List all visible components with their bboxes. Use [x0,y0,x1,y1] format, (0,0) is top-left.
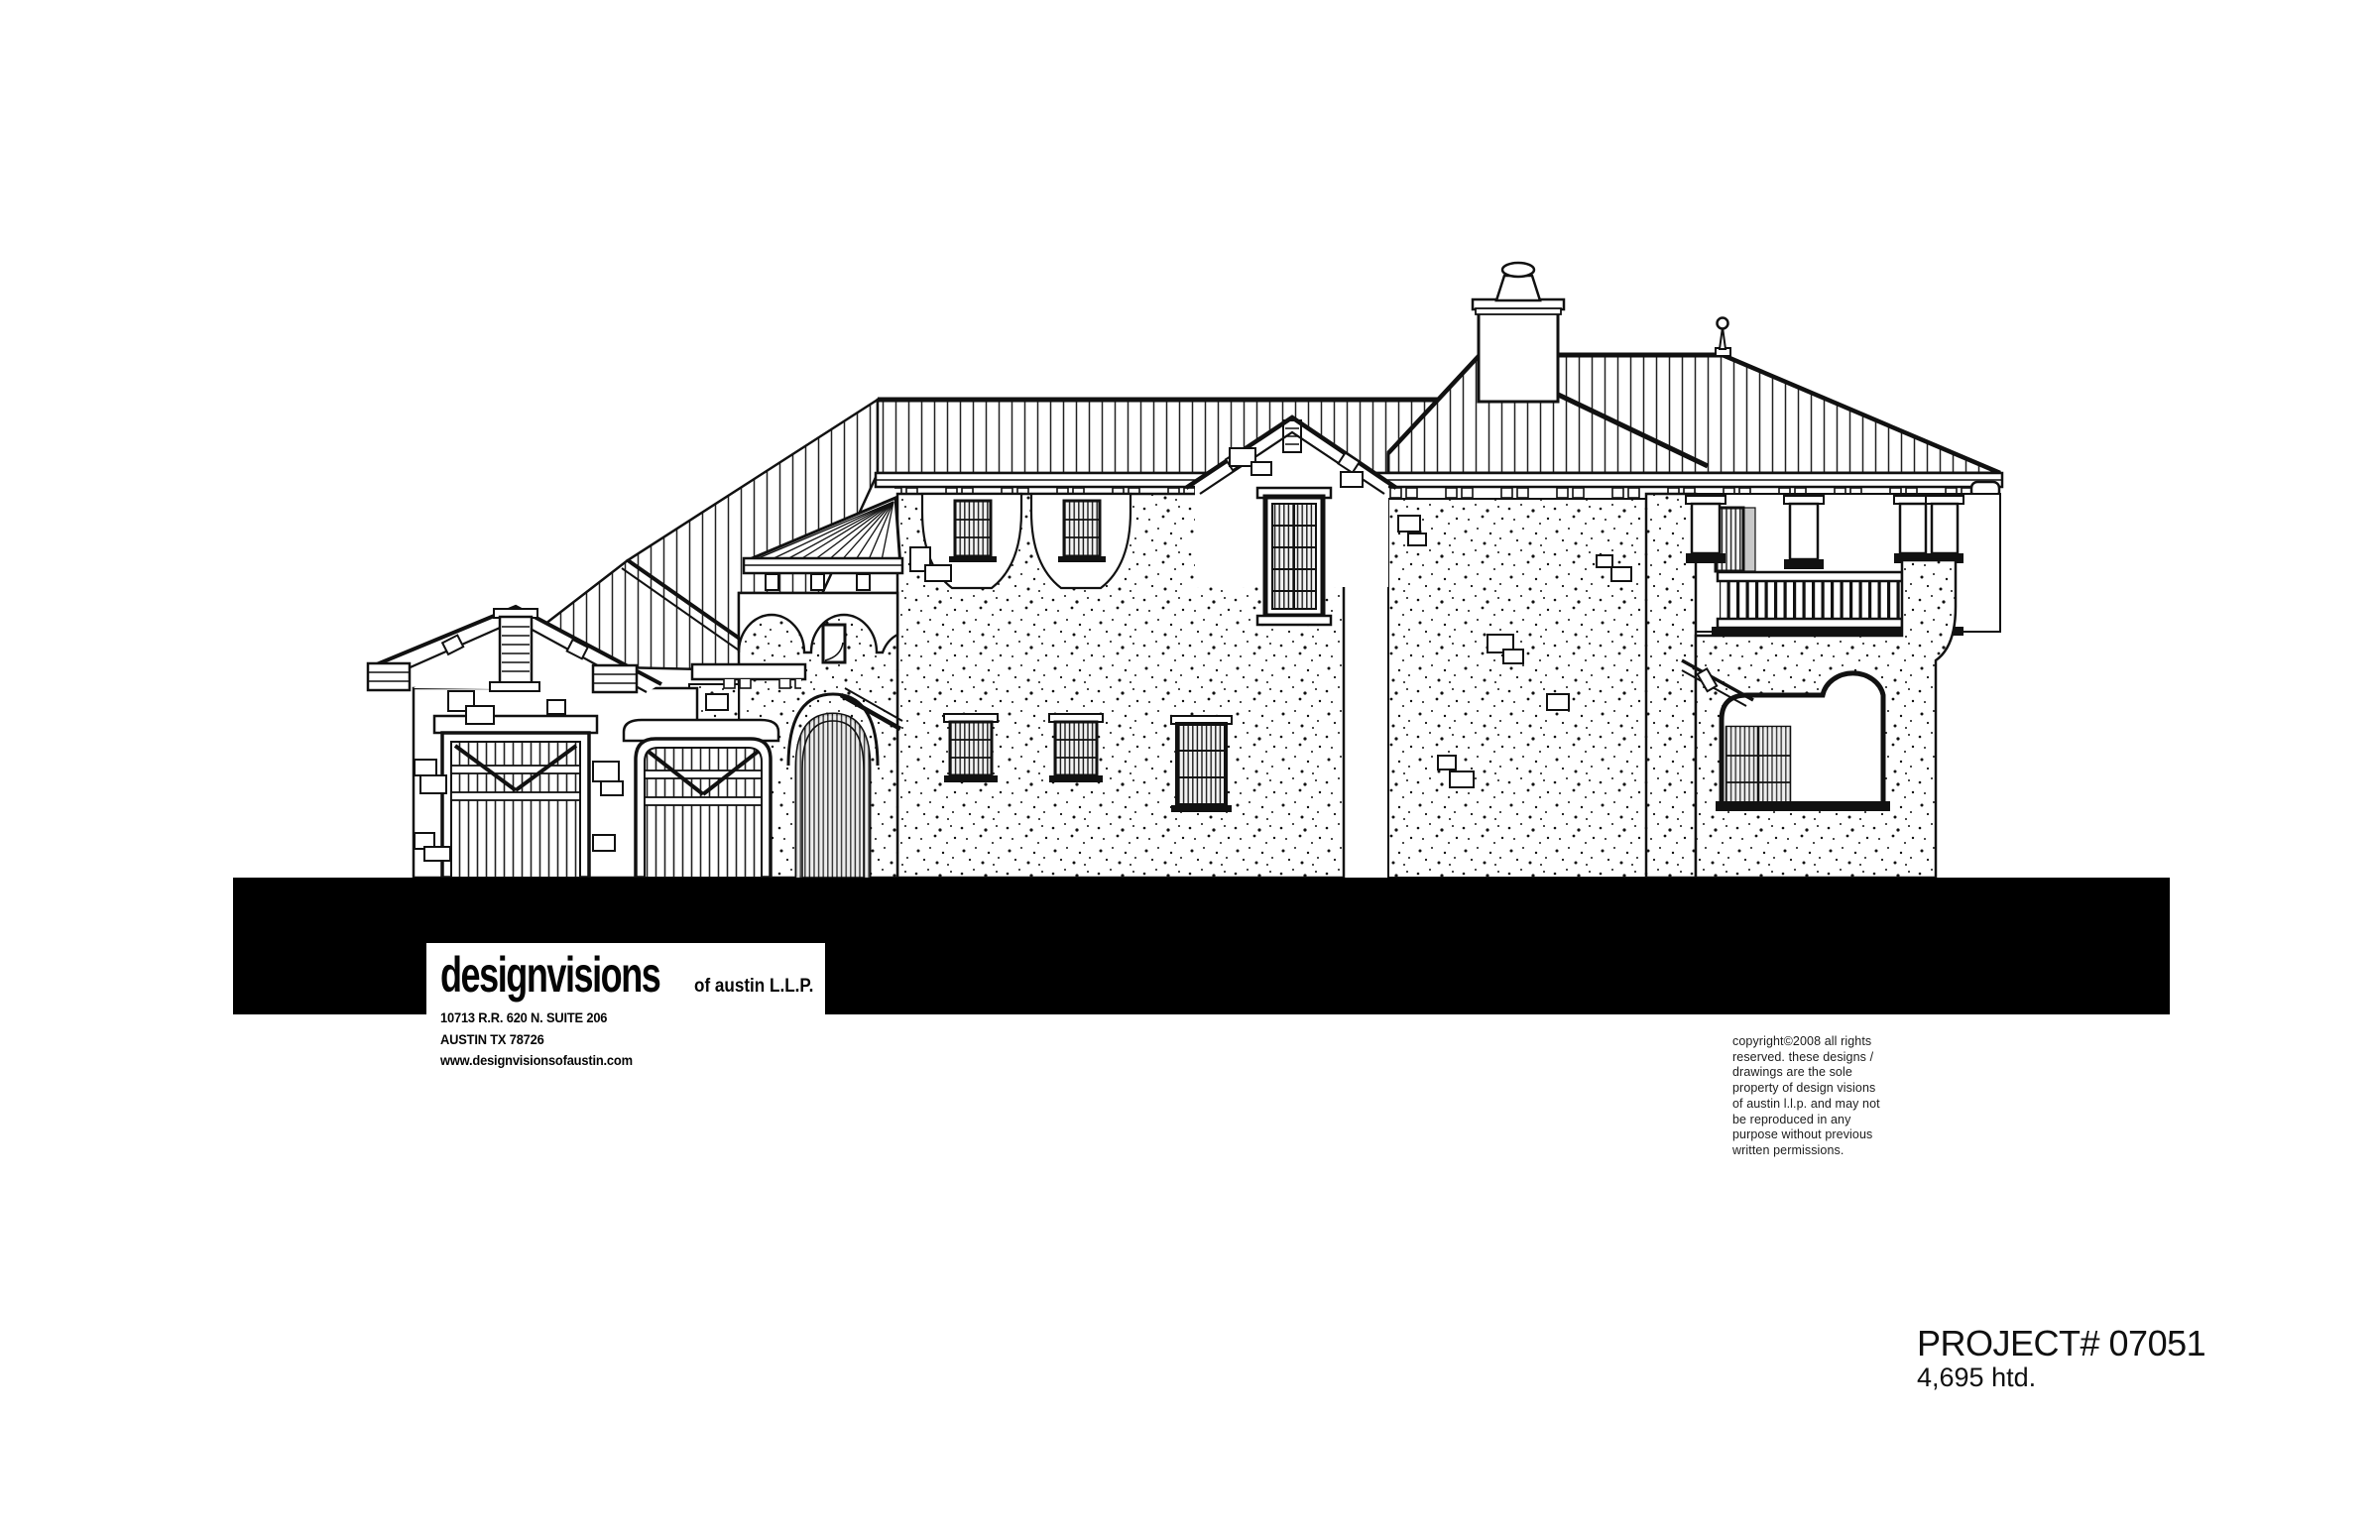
corbel [766,574,778,590]
address-line-3: www.designvisionsofaustin.com [440,1050,633,1072]
elevation-drawing [0,0,2380,1540]
corbel [811,574,824,590]
address-block: 10713 R.R. 620 N. SUITE 206 AUSTIN TX 78… [440,1007,633,1072]
balcony-left-pier [1646,494,1696,878]
copyright-line: reserved. these designs / [1732,1050,1880,1066]
project-area: 4,695 htd. [1917,1362,2036,1393]
logo-suffix: of austin L.L.P. [694,977,813,996]
door-lintel [434,716,597,733]
porch-sill [1716,801,1890,811]
copyright-line: be reproduced in any [1732,1113,1880,1128]
chimney-pot [1496,276,1540,300]
recess-window [1064,501,1100,556]
gutter-box [593,665,637,692]
copyright-line: drawings are the sole [1732,1065,1880,1081]
copyright-line: of austin l.l.p. and may not [1732,1097,1880,1113]
mid-window-2 [1049,714,1103,782]
gable-tall-window [1257,488,1331,625]
logo-designvisions: designvisions [440,950,659,1000]
copyright-notice: copyright©2008 all rights reserved. thes… [1732,1034,1880,1159]
copyright-line: copyright©2008 all rights [1732,1034,1880,1050]
copyright-line: property of design visions [1732,1081,1880,1097]
corbel [857,574,870,590]
porch-french-doors [1726,727,1790,805]
address-line-1: 10713 R.R. 620 N. SUITE 206 [440,1007,633,1029]
chimney [1473,263,1564,402]
recess-window [955,501,991,556]
garage-door-1 [434,716,597,878]
arched-recess-right [1031,494,1130,588]
drawing-sheet: designvisions of austin L.L.P. 10713 R.R… [0,0,2380,1540]
garage-door-2 [624,720,778,878]
gutter-box [368,663,410,690]
mid-window-1 [944,714,998,782]
project-number: PROJECT# 07051 [1917,1323,2205,1364]
mid-window-tall [1171,716,1232,812]
copyright-line: purpose without previous [1732,1127,1880,1143]
roof-finial [1716,318,1730,357]
main-roof-band [878,400,1468,473]
address-line-2: AUSTIN TX 78726 [440,1029,633,1051]
copyright-line: written permissions. [1732,1143,1880,1159]
balcony-railing [1718,572,1902,628]
